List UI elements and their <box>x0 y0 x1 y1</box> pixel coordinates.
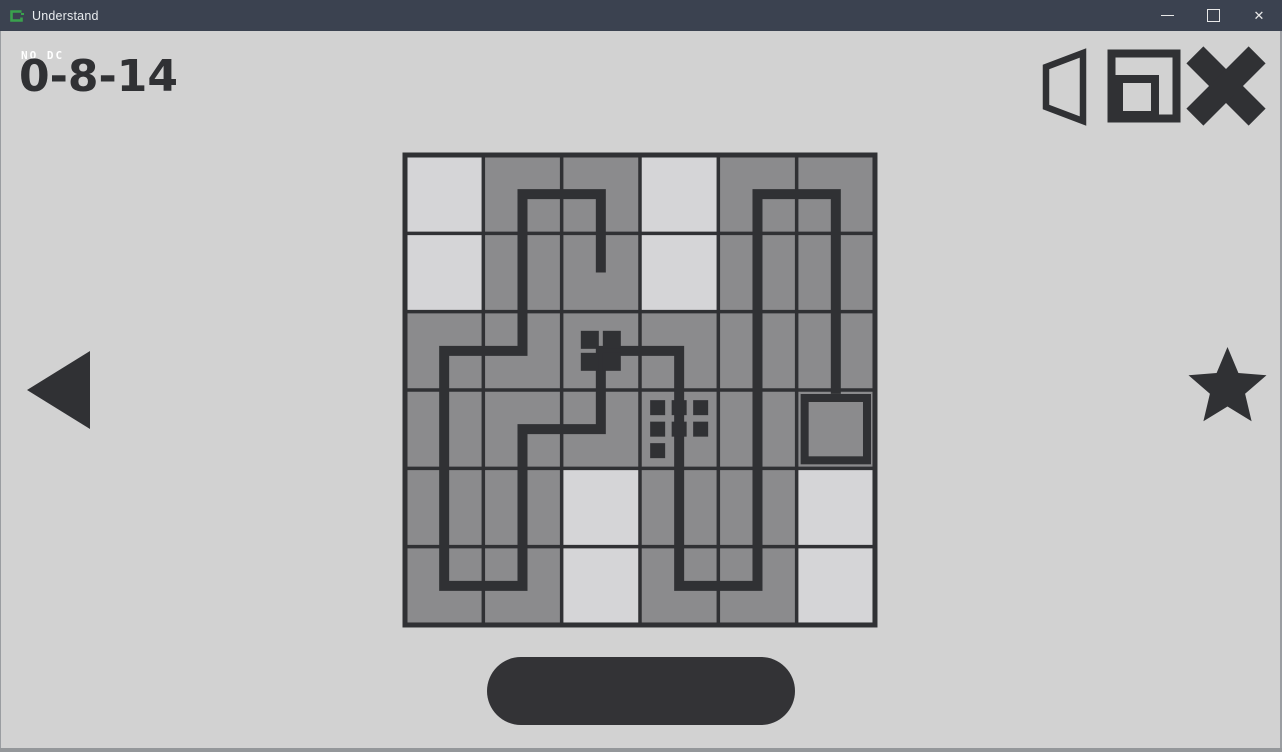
star-icon <box>1185 346 1270 431</box>
restart-button[interactable] <box>1107 49 1181 123</box>
puzzle-board[interactable] <box>405 155 875 625</box>
sound-toggle-button[interactable] <box>1042 50 1088 124</box>
prev-level-button[interactable] <box>26 350 92 430</box>
window-title: Understand <box>32 9 99 23</box>
window-controls: ✕ <box>1144 0 1282 31</box>
next-level-star[interactable] <box>1185 346 1270 431</box>
x-cross-icon <box>1187 47 1265 125</box>
progress-pill-button[interactable] <box>487 657 795 725</box>
close-button[interactable]: ✕ <box>1236 0 1282 31</box>
close-icon: ✕ <box>1254 8 1265 24</box>
titlebar: Understand ✕ <box>0 0 1282 31</box>
minimize-button[interactable] <box>1144 0 1190 31</box>
speaker-icon <box>1042 50 1088 124</box>
maximize-icon <box>1207 9 1220 22</box>
left-triangle-icon <box>26 350 92 430</box>
maximize-button[interactable] <box>1190 0 1236 31</box>
exit-button[interactable] <box>1187 47 1265 125</box>
app-window: Understand ✕ NO DC 0-8-14 <box>0 0 1282 752</box>
app-icon <box>8 7 25 24</box>
minimize-icon <box>1161 15 1174 17</box>
window-border-bottom <box>0 748 1282 752</box>
restart-icon <box>1107 49 1181 123</box>
level-code: 0-8-14 <box>19 53 178 101</box>
